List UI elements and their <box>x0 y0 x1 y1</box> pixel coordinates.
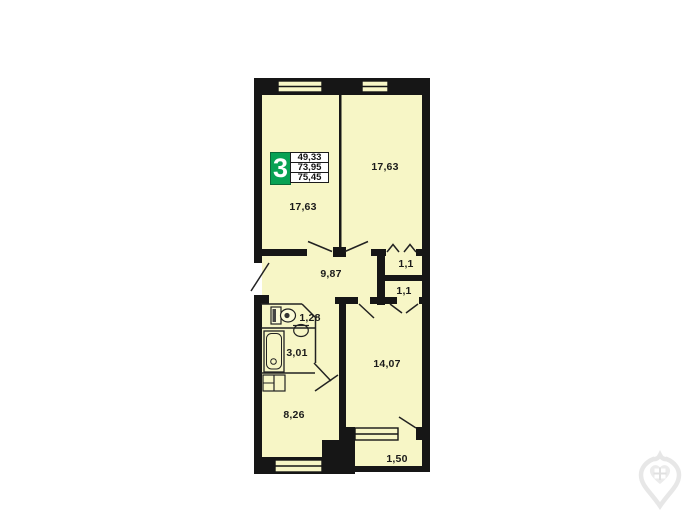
window-kitchen <box>275 460 322 472</box>
unit-area-table: 49,33 73,95 75,45 <box>290 152 329 185</box>
wall-balcony-right-top <box>416 427 429 440</box>
room-label-hallway: 9,87 <box>320 268 341 280</box>
room-label-closet2: 1,1 <box>396 285 411 297</box>
wall-rooms-bottom-a <box>261 249 307 256</box>
wall-hall-bottom-b <box>370 297 397 304</box>
room-label-room3: 14,07 <box>373 358 400 370</box>
room-label-room1: 17,63 <box>289 201 316 213</box>
wall-hall-bottom-c <box>419 297 429 304</box>
wall-left-upper <box>254 78 262 263</box>
floor-plan-drawing <box>0 0 700 525</box>
wall-hall-bottom-a <box>335 297 358 304</box>
wall-closet-mid <box>385 275 422 281</box>
window-balcony-block <box>355 428 398 440</box>
room-label-room2: 17,63 <box>371 161 398 173</box>
wall-right <box>422 78 430 472</box>
wall-balcony-bottom <box>350 466 429 472</box>
room-label-bathroom: 3,01 <box>286 347 307 359</box>
window-room2 <box>362 81 388 92</box>
wall-rooms-bottom-c <box>416 249 422 256</box>
unit-rooms-count: 3 <box>270 152 291 185</box>
floor-plan-page: 17,63 17,63 9,87 1,1 1,1 1,28 3,01 14,07… <box>0 0 700 525</box>
wall-rooms-divider <box>339 95 342 249</box>
wall-room3-left <box>339 304 346 427</box>
wall-bottom-step <box>322 440 339 474</box>
unit-area-total: 75,45 <box>290 172 329 183</box>
brand-pin-watermark-icon <box>641 455 679 506</box>
unit-badge: 3 49,33 73,95 75,45 <box>270 152 329 185</box>
room-label-wc: 1,28 <box>299 312 320 324</box>
window-room1 <box>278 81 322 92</box>
wall-closet-left <box>377 249 385 305</box>
room-label-closet1: 1,1 <box>398 258 413 270</box>
wall-left-lower <box>254 295 262 474</box>
room-label-balcony: 1,50 <box>386 453 407 465</box>
wall-entry-stub <box>254 295 269 304</box>
room-label-kitchen: 8,26 <box>283 409 304 421</box>
